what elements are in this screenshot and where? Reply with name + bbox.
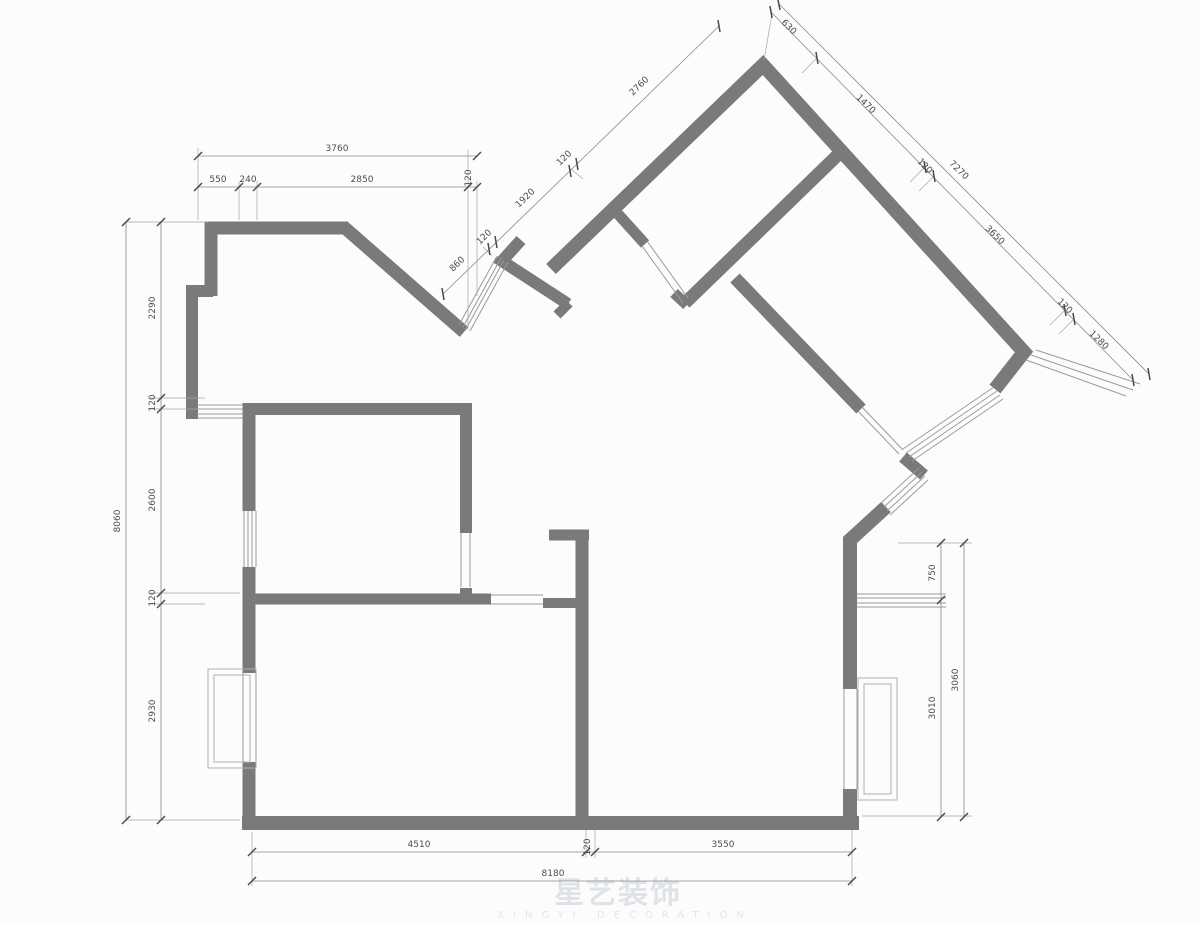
dim-label: 1280: [1087, 329, 1111, 352]
dim-label: 2600: [148, 488, 158, 511]
dim-label: 7270: [947, 159, 971, 182]
floor-plan-page: 星艺装饰 XINGYI DECORATION: [0, 0, 1200, 925]
dim-label: 3760: [326, 144, 349, 154]
dim-label: 120: [475, 228, 495, 247]
dim-label: 120: [1055, 297, 1075, 316]
wall-left-step: [192, 291, 213, 419]
dim-label: 630: [779, 18, 799, 37]
sill-ne-corner-lines: [1026, 350, 1140, 396]
dim-label: 120: [464, 169, 474, 186]
wall-mid-room-top-right: [243, 409, 466, 533]
dim-label: 750: [928, 564, 938, 581]
wall-upper-left-room: [211, 228, 464, 332]
extension-lines: [126, 14, 1074, 886]
window-sill-right-mid: [857, 594, 946, 607]
dim-label: 1470: [854, 93, 878, 116]
dim-label: 120: [915, 157, 935, 176]
window-right-bay: [844, 678, 897, 800]
dim-label: 240: [239, 175, 256, 185]
dim-label: 3010: [928, 696, 938, 719]
wall-partition-se: [735, 278, 861, 409]
dim-label: 2930: [148, 699, 158, 722]
dim-label: 120: [555, 149, 575, 168]
dim-label: 2850: [351, 175, 374, 185]
wall-entry-jamb: [618, 214, 645, 244]
window-lower-left-bay: [208, 669, 256, 768]
dim-label: 550: [209, 175, 226, 185]
dim-label: 3060: [951, 668, 961, 691]
watermark-latin-text: XINGYI DECORATION: [497, 910, 753, 921]
dim-label: 120: [583, 838, 593, 855]
dim-label: 860: [448, 255, 468, 274]
dim-label: 3550: [712, 840, 735, 850]
door-bedroom-se: [858, 407, 903, 454]
dim-label: 8060: [113, 509, 123, 532]
window-left-small: [197, 405, 243, 418]
walls: [192, 65, 1024, 823]
dim-label: 4510: [408, 840, 431, 850]
door-mid-room-right: [461, 533, 470, 587]
wall-entry-zigzag: [502, 240, 568, 304]
window-ne-corner: [903, 387, 1003, 461]
dim-label: 120: [148, 394, 158, 411]
dim-label: 120: [148, 589, 158, 606]
door-center-left: [491, 595, 543, 604]
dimension-lines: [126, 4, 1149, 881]
dim-label: 2290: [148, 296, 158, 319]
floor-plan-canvas: 星艺装饰 XINGYI DECORATION: [0, 0, 1200, 925]
dim-label: 8180: [542, 869, 565, 879]
window-mid-left: [244, 511, 256, 567]
watermark: 星艺装饰 XINGYI DECORATION: [497, 876, 753, 921]
wall-partition-ne: [685, 147, 846, 303]
dim-label: 1920: [514, 187, 538, 210]
dimension-ticks: [122, 0, 1150, 885]
dimension-labels: 3760 550 240 2850 120 8060 2290 120 2600…: [113, 18, 1110, 879]
